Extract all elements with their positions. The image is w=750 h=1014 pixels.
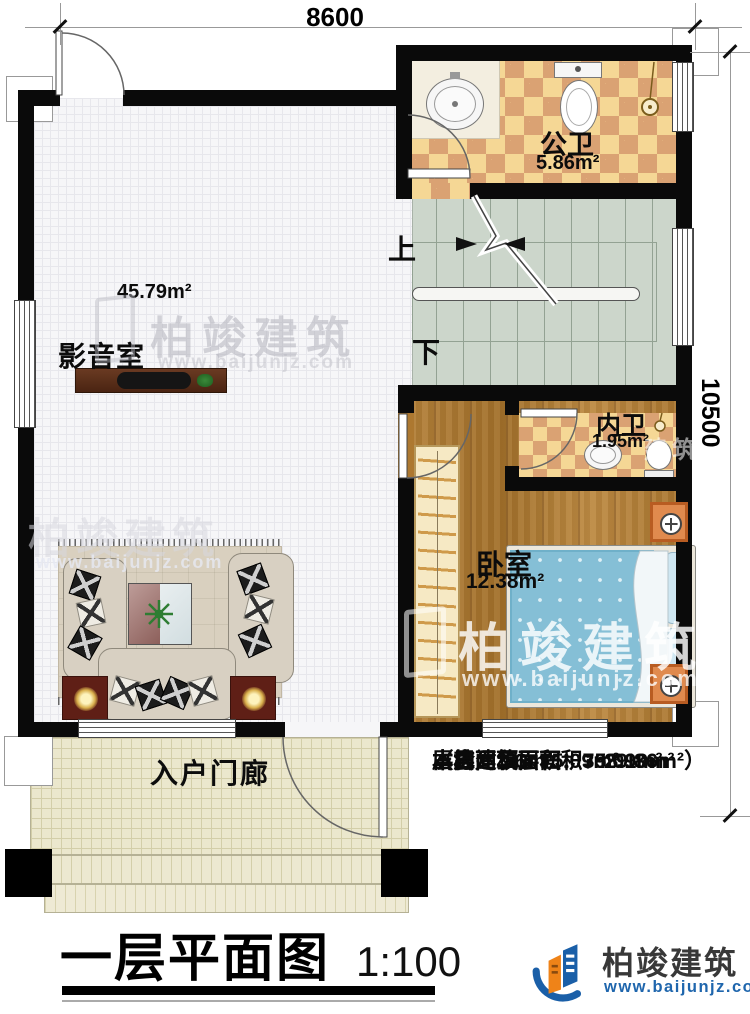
brand-logo-icon bbox=[530, 936, 596, 1002]
door-swing-arc bbox=[407, 414, 471, 478]
info-storey-height: 层高：3.6m bbox=[432, 744, 546, 775]
plant-center bbox=[155, 610, 164, 619]
door-leaf bbox=[56, 31, 62, 95]
watermark-brand-url: www.baijunjz.com bbox=[462, 666, 700, 692]
watermark-logo-icon bbox=[404, 606, 446, 678]
title-scale: 1:100 bbox=[356, 938, 461, 986]
floor-plan: 公卫 5.86m² 45.79m² 影音室 上 下 内卫 1.95m² 卧室 1… bbox=[0, 0, 750, 1014]
dimension-width: 8600 bbox=[280, 2, 390, 33]
door-leaf bbox=[379, 737, 387, 837]
lamp-icon bbox=[660, 513, 682, 535]
brand-url: www.baijunjz.com bbox=[604, 978, 750, 997]
stairs-up-label: 上 bbox=[388, 228, 416, 268]
dimension-line-right bbox=[730, 52, 731, 816]
nightstand bbox=[650, 502, 688, 542]
door-swing-arc bbox=[408, 115, 470, 177]
door-leaf bbox=[521, 409, 577, 417]
dimension-height: 10500 bbox=[696, 378, 724, 508]
door-swing-arc bbox=[62, 33, 124, 95]
drawing-title: 一层平面图 1:100 bbox=[60, 916, 480, 982]
door-swing-arc bbox=[283, 737, 383, 837]
room-area-private-bath: 1.95m² bbox=[592, 431, 649, 452]
title-text: 一层平面图 bbox=[60, 916, 330, 991]
title-underline-thin bbox=[62, 1000, 435, 1002]
stairs-down-label: 下 bbox=[412, 331, 440, 371]
title-underline bbox=[62, 986, 435, 995]
shower-hose bbox=[660, 413, 662, 421]
room-area-public-bath: 5.86m² bbox=[536, 152, 599, 175]
watermark-brand-url: www.baijunjz.com bbox=[36, 552, 223, 573]
door-leaf bbox=[399, 414, 407, 478]
shower-head-dot bbox=[648, 105, 652, 109]
brand-logo: 柏竣建筑 www.baijunjz.com bbox=[530, 934, 748, 1010]
stair-arrow-icon bbox=[456, 237, 477, 251]
room-label-porch: 入户门廊 bbox=[150, 752, 270, 792]
watermark-partial: 建筑 bbox=[644, 430, 700, 465]
door-swing-arc bbox=[521, 413, 577, 469]
door-leaf bbox=[408, 169, 470, 178]
watermark-brand-url: www.baijunjz.com bbox=[158, 352, 354, 374]
extension-line bbox=[690, 52, 750, 53]
room-area-bedroom: 12.38m² bbox=[466, 570, 544, 594]
watermark-logo-icon bbox=[95, 294, 135, 364]
shower-hose bbox=[650, 62, 654, 100]
